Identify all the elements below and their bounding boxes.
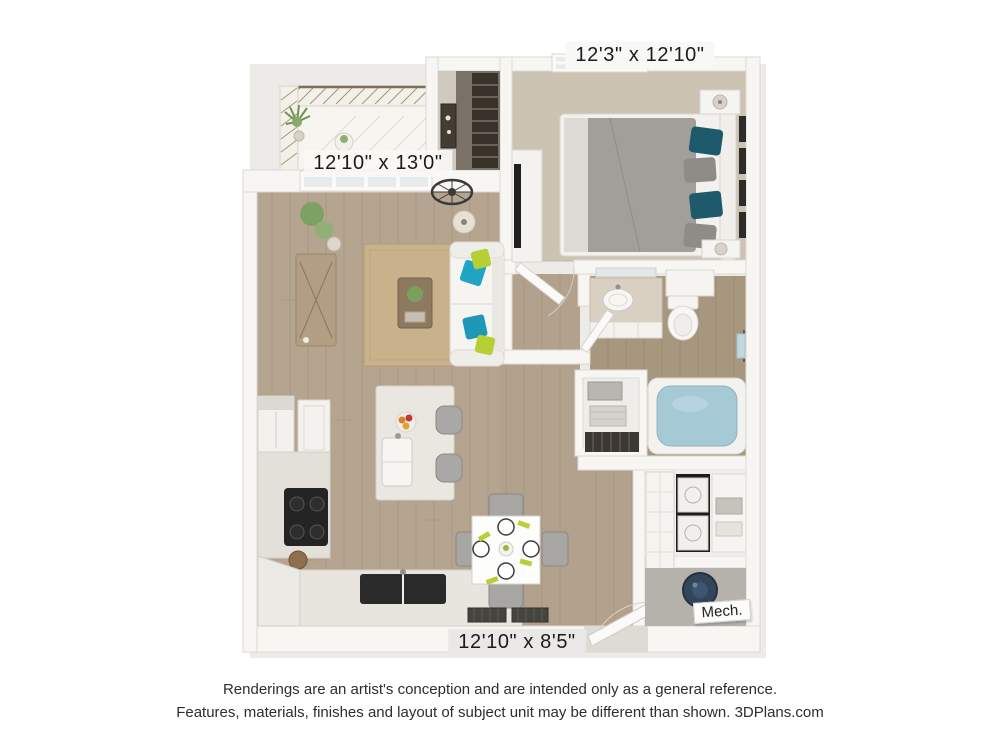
bedroom-dimension-label: 12'3" x 12'10" xyxy=(565,42,714,69)
wall-bedroom-left xyxy=(500,57,512,274)
balcony-table xyxy=(335,133,353,151)
bed-pillow-teal-1 xyxy=(688,126,723,156)
cutting-board xyxy=(289,551,307,569)
wall-hall-stub xyxy=(500,350,590,364)
sofa xyxy=(450,242,504,366)
tv xyxy=(514,164,521,248)
island-stool-1 xyxy=(436,406,462,434)
bathroom-mirror xyxy=(596,268,656,277)
floorplan-render: 12'3" x 12'10" 12'10" x 13'0" 12'10" x 8… xyxy=(0,0,1000,750)
cabinet-over-toilet xyxy=(666,270,714,296)
kitchen-island xyxy=(376,386,454,500)
wall-bath-bottom xyxy=(578,456,746,470)
ceiling-fan xyxy=(432,180,472,204)
dining-chair-bottom xyxy=(489,582,523,608)
bed-pillow-gray-1 xyxy=(683,157,717,183)
coffee-table xyxy=(398,278,432,328)
dining-chair-right xyxy=(542,532,568,566)
nightstand-bottom xyxy=(702,240,740,258)
kitchen-dining-dimension-label: 12'10" x 8'5" xyxy=(448,629,586,656)
living-room-dimension-label: 12'10" x 13'0" xyxy=(303,150,452,177)
closet-wall-decor xyxy=(441,104,456,148)
tub-water xyxy=(657,386,737,446)
towels xyxy=(716,498,742,514)
wall-left xyxy=(243,170,257,652)
bathtub xyxy=(648,378,746,454)
media-console xyxy=(296,254,336,346)
nightstand-top xyxy=(700,90,740,114)
towel-stack xyxy=(590,406,626,426)
linen-shelf xyxy=(575,370,647,456)
kitchen-sink xyxy=(360,569,446,604)
washer-dryer-stack xyxy=(676,474,710,552)
island-sink xyxy=(382,433,412,486)
storage-bin xyxy=(588,382,622,400)
island-stool-2 xyxy=(436,454,462,482)
wall-bath-left xyxy=(578,274,590,306)
cooktop xyxy=(284,488,328,546)
bedroom-dresser-tv xyxy=(512,150,542,262)
sofa-pillow-lime-2 xyxy=(474,334,495,355)
mech-room-label: Mech. xyxy=(693,599,751,624)
floor-lamp xyxy=(453,211,475,233)
bed-pillow-teal-2 xyxy=(689,190,724,219)
disclaimer-text: Renderings are an artist's conception an… xyxy=(0,679,1000,724)
closet-shelves xyxy=(712,474,746,552)
wall-right xyxy=(746,57,760,652)
refrigerator xyxy=(258,396,294,454)
disclaimer-line-1: Renderings are an artist's conception an… xyxy=(0,679,1000,702)
pantry-cabinet xyxy=(298,400,330,456)
towel-bar xyxy=(737,330,745,362)
bed xyxy=(560,110,736,260)
fruit-bowl xyxy=(396,412,416,432)
disclaimer-line-2: Features, materials, finishes and layout… xyxy=(0,702,1000,725)
